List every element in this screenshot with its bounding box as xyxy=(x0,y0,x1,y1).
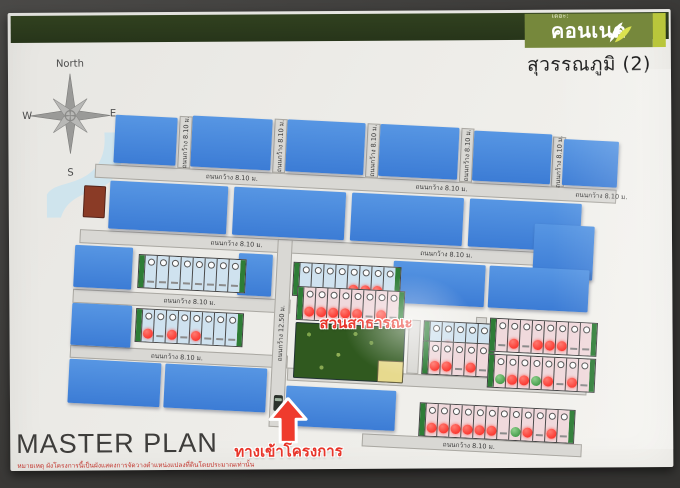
lot-number-circle xyxy=(181,314,188,321)
lot-area-text xyxy=(522,345,529,347)
lot-area-text xyxy=(180,336,187,338)
lot-number-circle xyxy=(497,358,504,365)
lot-area-text xyxy=(228,339,235,341)
lot-strip xyxy=(137,254,247,293)
lot-number-circle xyxy=(557,361,564,368)
master-plan-sheet: เดอะ: คอนเนค สุวรรณภูมิ (2) North W E S xyxy=(8,9,674,471)
road-width-label: ถนนกว้าง 8.10 ม. xyxy=(206,171,259,184)
lot-area-text xyxy=(170,282,177,284)
booked-dot xyxy=(438,423,448,433)
lot-area-text xyxy=(535,434,542,436)
lot-number-circle xyxy=(535,324,542,331)
lot-number-circle xyxy=(147,258,154,265)
road-width-label: ถนนกว้าง 8.10 ม. xyxy=(210,238,263,251)
sold-lot-cover xyxy=(73,245,133,290)
lot-number-circle xyxy=(229,317,236,324)
status-dot-green xyxy=(510,427,520,437)
lot-number-circle xyxy=(547,324,554,331)
road-width-label: ถนนกว้าง 8.10 ม. xyxy=(274,120,287,173)
lot-number-circle xyxy=(476,409,483,416)
lot-number-circle xyxy=(157,313,164,320)
status-dot-green xyxy=(530,376,540,386)
lot-number-circle xyxy=(386,270,393,277)
lot-number-circle xyxy=(488,410,495,417)
sold-lot-cover xyxy=(378,124,459,180)
compass-north-label: North xyxy=(56,59,84,70)
sold-lot-cover xyxy=(562,139,619,188)
site-plan: ถนนกว้าง 8.10 ม.ถนนกว้าง 8.10 ม.ถนนกว้าง… xyxy=(22,105,616,465)
booked-dot xyxy=(544,340,554,350)
road-width-label: ถนนกว้าง 8.10 ม. xyxy=(575,190,628,203)
lot-area-text xyxy=(499,432,506,434)
lot-number-circle xyxy=(480,327,487,334)
brand-prefix: เดอะ: xyxy=(552,14,569,20)
lot-area-text xyxy=(570,348,577,350)
sold-lot-cover xyxy=(108,181,228,235)
lot-number-circle xyxy=(169,314,176,321)
booked-dot xyxy=(556,341,566,351)
lot-number-circle xyxy=(374,270,381,277)
lot-number-circle xyxy=(467,346,474,353)
lot-strip xyxy=(488,318,598,357)
sold-lot-cover xyxy=(488,265,590,312)
road-width-label: ถนนกว้าง 12.50 ม. xyxy=(274,305,287,362)
sold-lot-cover xyxy=(232,187,346,241)
sold-lot-cover xyxy=(472,131,552,185)
booked-dot xyxy=(465,362,475,372)
lot-area-text xyxy=(478,369,485,371)
booked-dot xyxy=(486,426,496,436)
lot-number-circle xyxy=(378,294,385,301)
lot-number-circle xyxy=(548,413,555,420)
lot-number-circle xyxy=(195,261,202,268)
sold-lot-cover xyxy=(285,119,365,175)
road-width-label: ถนนกว้าง 8.10 ม. xyxy=(367,124,380,177)
lot-number-circle xyxy=(390,295,397,302)
lot-number-circle xyxy=(582,326,589,333)
booked-dot xyxy=(506,374,516,384)
lot-number-circle xyxy=(452,408,459,415)
booked-dot xyxy=(190,331,200,341)
sold-lot-cover xyxy=(392,261,486,308)
lot-number-circle xyxy=(455,346,462,353)
utility-block xyxy=(83,185,107,218)
booked-dot xyxy=(450,424,460,434)
booked-dot xyxy=(566,377,576,387)
lot-number-circle xyxy=(499,322,506,329)
lot-number-circle xyxy=(428,407,435,414)
lot-number-circle xyxy=(456,326,463,333)
clubhouse-block xyxy=(377,360,404,383)
lot-number-circle xyxy=(362,269,369,276)
lot-number-circle xyxy=(318,291,325,298)
booked-dot xyxy=(522,427,532,437)
lot-number-circle xyxy=(512,411,519,418)
compass-west-label: W xyxy=(22,111,32,122)
lot-area-text xyxy=(194,283,201,285)
road-width-label: ถนนกว้าง 8.10 ม. xyxy=(415,182,468,195)
lot-number-circle xyxy=(545,360,552,367)
lot-unit xyxy=(556,410,570,443)
road-width-label: ถนนกว้าง 8.10 ม. xyxy=(443,439,496,452)
lot-number-circle xyxy=(479,347,486,354)
booked-dot xyxy=(303,306,313,316)
lot-number-circle xyxy=(193,315,200,322)
park-label: สวนสาธารณะ xyxy=(319,311,412,336)
lot-area-text xyxy=(206,283,213,285)
booked-dot xyxy=(542,376,552,386)
booked-dot xyxy=(426,423,436,433)
lot-unit xyxy=(577,359,591,392)
lot-number-circle xyxy=(571,326,578,333)
lot-number-circle xyxy=(431,345,438,352)
road-width-label: ถนนกว้าง 8.10 ม. xyxy=(460,129,473,182)
lot-unit xyxy=(578,323,592,356)
booked-dot xyxy=(441,361,451,371)
sold-lot-cover xyxy=(190,116,272,171)
lot-strip xyxy=(487,354,597,393)
photo-background: เดอะ: คอนเนค สุวรรณภูมิ (2) North W E S xyxy=(0,0,680,488)
lot-area-text xyxy=(498,344,505,346)
lot-number-circle xyxy=(207,261,214,268)
lot-area-text xyxy=(455,368,462,370)
booked-dot xyxy=(142,328,152,338)
lot-number-circle xyxy=(217,316,224,323)
logo-accent-strip xyxy=(653,13,666,47)
sold-lot-cover xyxy=(113,115,177,166)
entrance-arrow-icon xyxy=(268,397,308,443)
booked-dot xyxy=(462,424,472,434)
lot-number-circle xyxy=(205,315,212,322)
booked-dot xyxy=(532,340,542,350)
sold-lot-cover xyxy=(67,359,161,408)
master-plan-title: MASTER PLAN xyxy=(16,428,218,460)
lot-number-circle xyxy=(366,293,373,300)
lot-number-circle xyxy=(464,408,471,415)
lot-number-circle xyxy=(354,293,361,300)
lot-number-circle xyxy=(440,407,447,414)
booked-dot xyxy=(508,339,518,349)
booked-dot xyxy=(474,425,484,435)
lot-area-text xyxy=(580,384,587,386)
lot-number-circle xyxy=(509,359,516,366)
lot-area-text xyxy=(559,435,566,437)
lot-number-circle xyxy=(314,267,321,274)
lot-number-circle xyxy=(432,325,439,332)
lot-number-circle xyxy=(523,323,530,330)
lot-number-circle xyxy=(524,411,531,418)
booked-dot xyxy=(429,361,439,371)
leaf-logo-icon xyxy=(607,19,633,45)
lot-area-text xyxy=(156,335,163,337)
sold-lot-cover xyxy=(350,193,464,247)
lot-number-circle xyxy=(231,263,238,270)
lot-number-circle xyxy=(443,345,450,352)
lot-number-circle xyxy=(338,268,345,275)
lot-area-text xyxy=(146,280,153,282)
booked-dot xyxy=(546,429,556,439)
lot-number-circle xyxy=(444,325,451,332)
lot-unit xyxy=(227,260,241,293)
road-width-label: ถนนกว้าง 8.10 ม. xyxy=(179,116,192,169)
lot-number-circle xyxy=(350,269,357,276)
road-width-label: ถนนกว้าง 8.10 ม. xyxy=(163,295,216,308)
lot-area-text xyxy=(216,338,223,340)
project-subtitle: สุวรรณภูมิ (2) xyxy=(527,49,651,80)
lot-area-text xyxy=(204,337,211,339)
lot-area-text xyxy=(218,284,225,286)
status-dot-green xyxy=(494,374,504,384)
lot-area-text xyxy=(556,383,563,385)
lot-number-circle xyxy=(560,413,567,420)
lot-number-circle xyxy=(330,292,337,299)
lot-number-circle xyxy=(500,410,507,417)
brand-logo: เดอะ: คอนเนค xyxy=(525,13,653,48)
lot-number-circle xyxy=(342,292,349,299)
lot-number-circle xyxy=(171,260,178,267)
lot-number-circle xyxy=(326,267,333,274)
lot-number-circle xyxy=(521,359,528,366)
lot-number-circle xyxy=(145,312,152,319)
lot-number-circle xyxy=(581,362,588,369)
lot-number-circle xyxy=(219,262,226,269)
sold-lot-cover xyxy=(70,303,132,348)
lot-area-text xyxy=(182,282,189,284)
lot-number-circle xyxy=(511,323,518,330)
lot-number-circle xyxy=(468,327,475,334)
lot-number-circle xyxy=(159,259,166,266)
lot-area-text xyxy=(158,281,165,283)
lot-number-circle xyxy=(536,412,543,419)
road-width-label: ถนนกว้าง 8.10 ม. xyxy=(151,350,204,363)
lot-number-circle xyxy=(533,360,540,367)
lot-strip xyxy=(421,340,495,378)
sold-lot-cover xyxy=(163,363,267,412)
lot-area-text xyxy=(582,348,589,350)
lot-number-circle xyxy=(559,325,566,332)
lot-area-text xyxy=(230,285,237,287)
booked-dot xyxy=(518,375,528,385)
disclaimer-note: หมายเหตุ ผังโครงการนี้เป็นผังแสดงการจัดว… xyxy=(17,460,254,471)
lot-number-circle xyxy=(306,290,313,297)
lot-number-circle xyxy=(569,362,576,369)
lot-unit xyxy=(224,313,238,346)
lot-number-circle xyxy=(183,260,190,267)
booked-dot xyxy=(166,330,176,340)
lot-strip xyxy=(134,308,244,347)
road-width-label: ถนนกว้าง 8.10 ม. xyxy=(420,248,473,261)
lot-number-circle xyxy=(302,266,309,273)
